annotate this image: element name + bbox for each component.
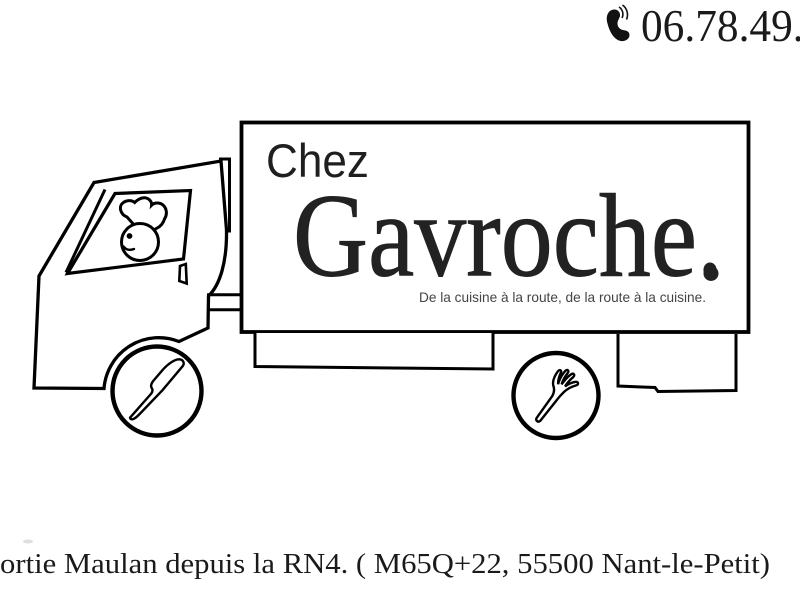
svg-text:Sortie Maulan depuis la RN4. (: Sortie Maulan depuis la RN4. ( M65Q+22, … <box>0 549 770 580</box>
svg-text:De la cuisine à la route, de l: De la cuisine à la route, de la route à … <box>419 289 706 305</box>
svg-text:06.78.49.53: 06.78.49.53 <box>641 1 800 51</box>
svg-text:Gavroche.: Gavroche. <box>293 170 723 302</box>
